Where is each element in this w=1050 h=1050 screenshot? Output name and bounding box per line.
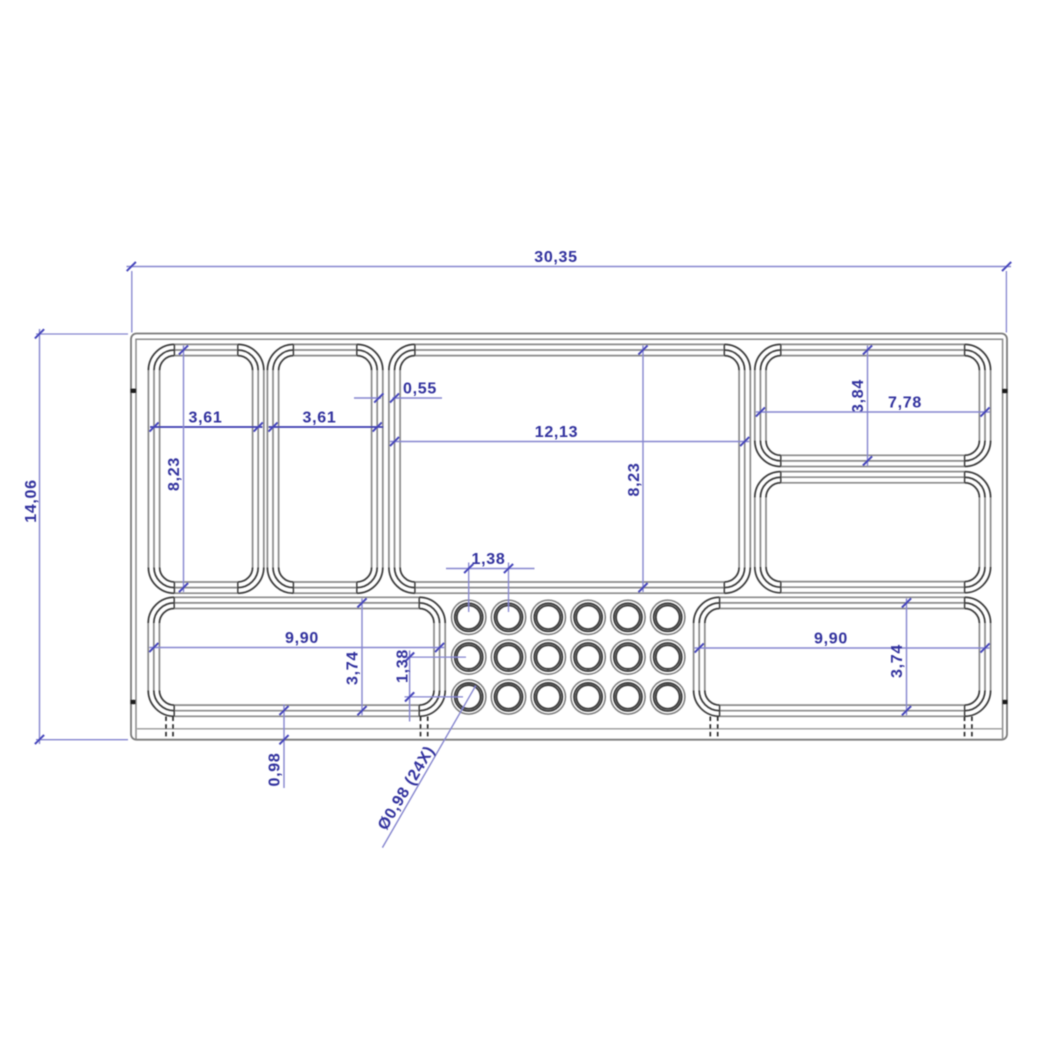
svg-text:14,06: 14,06 bbox=[23, 479, 40, 523]
svg-text:3,61: 3,61 bbox=[303, 410, 337, 427]
svg-text:1,38: 1,38 bbox=[395, 649, 412, 683]
svg-text:3,61: 3,61 bbox=[189, 410, 223, 427]
svg-text:7,78: 7,78 bbox=[888, 395, 922, 412]
svg-text:30,35: 30,35 bbox=[534, 249, 578, 266]
svg-text:0,98: 0,98 bbox=[267, 753, 284, 787]
svg-text:1,38: 1,38 bbox=[472, 551, 506, 568]
svg-text:8,23: 8,23 bbox=[166, 457, 183, 491]
svg-text:0,55: 0,55 bbox=[403, 381, 437, 398]
svg-text:12,13: 12,13 bbox=[535, 424, 579, 441]
svg-text:9,90: 9,90 bbox=[814, 631, 848, 648]
svg-text:3,74: 3,74 bbox=[889, 644, 906, 678]
svg-text:3,74: 3,74 bbox=[345, 651, 362, 685]
svg-text:3,84: 3,84 bbox=[850, 379, 867, 413]
svg-text:9,90: 9,90 bbox=[285, 630, 319, 647]
svg-text:8,23: 8,23 bbox=[626, 463, 643, 497]
